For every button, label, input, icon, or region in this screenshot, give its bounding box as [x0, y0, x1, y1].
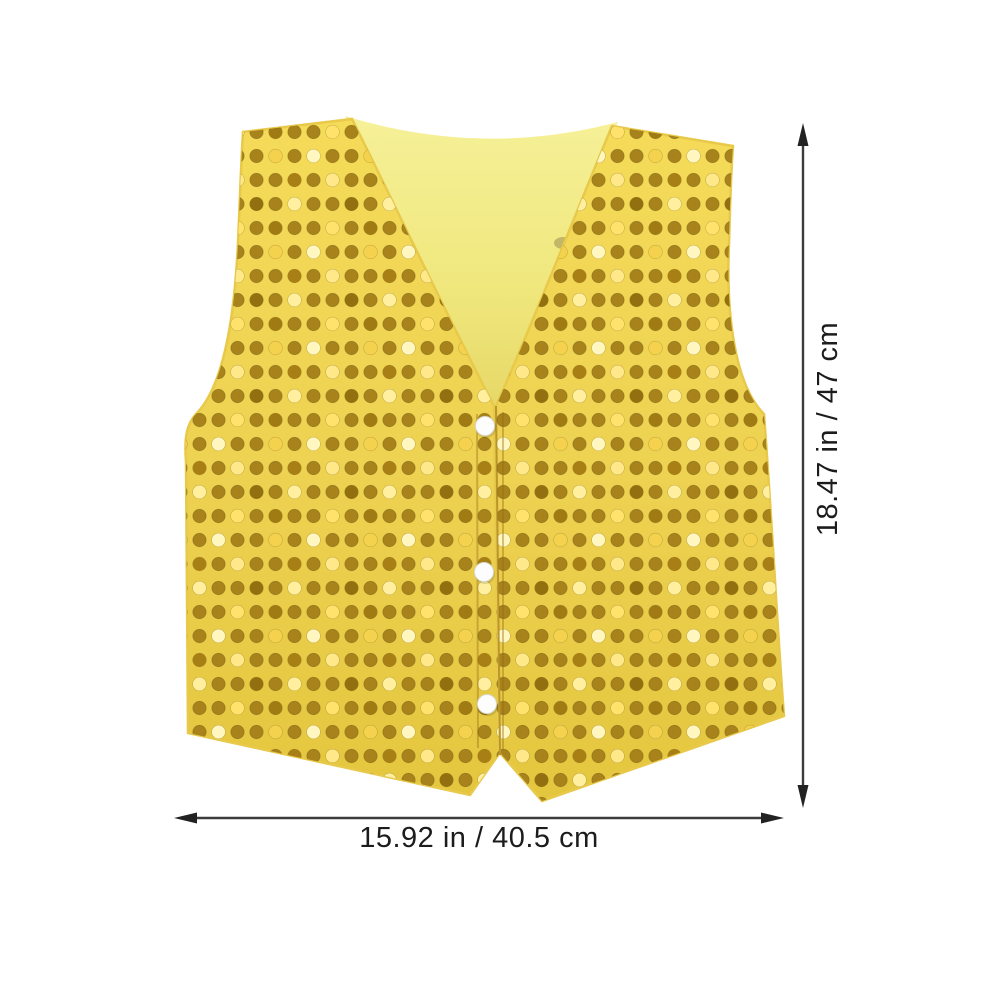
product-screenshot: 15.92 in / 40.5 cm 18.47 in / 47 cm [0, 0, 1000, 1000]
height-dimension-arrow [798, 123, 809, 808]
width-dimension-label: 15.92 in / 40.5 cm [279, 822, 679, 855]
height-dimension-label: 18.47 in / 47 cm [810, 229, 846, 629]
